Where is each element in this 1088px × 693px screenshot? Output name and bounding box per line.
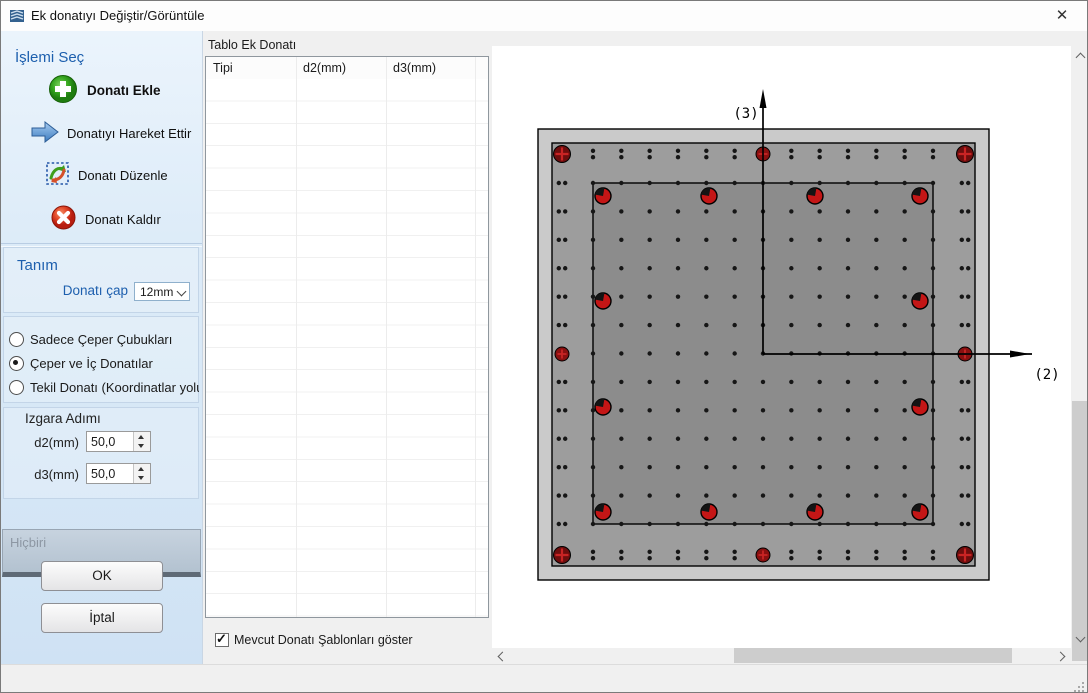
horizontal-scroll-thumb[interactable] bbox=[734, 648, 1012, 663]
grid-step-title: Izgara Adımı bbox=[25, 411, 101, 426]
add-rebar-button[interactable]: Donatı Ekle bbox=[48, 74, 161, 107]
radio-single-rebar[interactable]: Tekil Donatı (Koordinatlar yoluyla bbox=[9, 380, 199, 395]
column-divider bbox=[386, 57, 387, 617]
drawing-panel: (3)(2) bbox=[491, 31, 1088, 664]
table-body[interactable] bbox=[206, 79, 488, 617]
remove-rebar-button[interactable]: Donatı Kaldır bbox=[51, 205, 161, 233]
radio-perimeter-and-inner[interactable]: Çeper ve İç Donatılar bbox=[9, 356, 199, 371]
radio-icon bbox=[9, 332, 24, 347]
chevron-down-icon bbox=[177, 287, 187, 297]
diameter-label: Donatı çap bbox=[1, 283, 128, 298]
radio-label: Çeper ve İç Donatılar bbox=[30, 356, 153, 371]
axis-2-label: (2) bbox=[1034, 367, 1059, 383]
edit-rebar-label: Donatı Düzenle bbox=[78, 168, 168, 183]
status-bar bbox=[1, 664, 1087, 693]
titlebar: Ek donatıyı Değiştir/Görüntüle ✕ bbox=[1, 1, 1087, 32]
section-drawing-canvas[interactable]: (3)(2) bbox=[492, 46, 1071, 648]
d3-label: d3(mm) bbox=[9, 467, 79, 482]
column-d3[interactable]: d3(mm) bbox=[393, 61, 436, 75]
horizontal-scrollbar[interactable] bbox=[492, 648, 1071, 663]
table-title: Tablo Ek Donatı bbox=[208, 38, 296, 52]
column-divider bbox=[475, 57, 476, 617]
checkbox-icon: ✓ bbox=[215, 633, 229, 647]
radio-icon bbox=[9, 380, 24, 395]
remove-rebar-icon bbox=[51, 205, 76, 233]
diameter-dropdown[interactable]: 12mm bbox=[134, 282, 190, 301]
show-templates-checkbox[interactable]: ✓ Mevcut Donatı Şablonları göster bbox=[215, 633, 413, 647]
edit-rebar-button[interactable]: Donatı Düzenle bbox=[45, 161, 168, 190]
d2-spin-down[interactable] bbox=[134, 442, 150, 452]
table-panel: Tablo Ek Donatı Tipi d2(mm) d3(mm) ✓ Mev… bbox=[203, 31, 491, 664]
dialog-window: Ek donatıyı Değiştir/Görüntüle ✕ İşlemi … bbox=[0, 0, 1088, 693]
diameter-value: 12mm bbox=[140, 285, 173, 299]
section-title-operation: İşlemi Seç bbox=[15, 49, 84, 66]
rebar-table[interactable]: Tipi d2(mm) d3(mm) bbox=[205, 56, 489, 618]
edit-rebar-icon bbox=[45, 161, 71, 190]
radio-label: Tekil Donatı (Koordinatlar yoluyla bbox=[30, 380, 199, 395]
vertical-scrollbar[interactable] bbox=[1071, 46, 1088, 648]
section-title-definition: Tanım bbox=[17, 257, 58, 274]
column-d2[interactable]: d2(mm) bbox=[303, 61, 346, 75]
check-mark-icon: ✓ bbox=[216, 631, 227, 647]
d2-input[interactable]: 50,0 bbox=[86, 431, 151, 452]
axis-3-label: (3) bbox=[733, 106, 758, 122]
scroll-left-icon[interactable] bbox=[496, 651, 506, 661]
scroll-down-icon[interactable] bbox=[1075, 634, 1085, 644]
move-rebar-icon bbox=[31, 121, 59, 146]
d2-label: d2(mm) bbox=[9, 435, 79, 450]
radio-label: Sadece Çeper Çubukları bbox=[30, 332, 172, 347]
close-button[interactable]: ✕ bbox=[1051, 6, 1073, 26]
table-header: Tipi d2(mm) d3(mm) bbox=[206, 57, 488, 80]
ok-button[interactable]: OK bbox=[41, 561, 163, 591]
move-rebar-button[interactable]: Donatıyı Hareket Ettir bbox=[31, 121, 191, 146]
d2-value: 50,0 bbox=[91, 435, 115, 449]
d3-spin-down[interactable] bbox=[134, 474, 150, 484]
sidebar: İşlemi Seç Donatı Ekle Donatıyı Hareket … bbox=[1, 31, 203, 664]
add-rebar-icon bbox=[48, 74, 78, 107]
d3-input[interactable]: 50,0 bbox=[86, 463, 151, 484]
column-divider bbox=[296, 57, 297, 617]
remove-rebar-label: Donatı Kaldır bbox=[85, 212, 161, 227]
move-rebar-label: Donatıyı Hareket Ettir bbox=[67, 126, 191, 141]
vertical-scroll-thumb[interactable] bbox=[1072, 401, 1087, 661]
cancel-button[interactable]: İptal bbox=[41, 603, 163, 633]
radio-selected-icon bbox=[9, 356, 24, 371]
add-rebar-label: Donatı Ekle bbox=[87, 83, 161, 98]
column-tipi[interactable]: Tipi bbox=[213, 61, 233, 75]
scroll-right-icon[interactable] bbox=[1057, 651, 1067, 661]
radio-perimeter-only[interactable]: Sadece Çeper Çubukları bbox=[9, 332, 199, 347]
d3-value: 50,0 bbox=[91, 467, 115, 481]
checkbox-label: Mevcut Donatı Şablonları göster bbox=[234, 633, 413, 647]
resize-grip-icon[interactable] bbox=[1072, 680, 1084, 692]
scroll-up-icon[interactable] bbox=[1075, 50, 1085, 60]
window-title: Ek donatıyı Değiştir/Görüntüle bbox=[31, 8, 204, 23]
app-icon bbox=[9, 8, 25, 24]
